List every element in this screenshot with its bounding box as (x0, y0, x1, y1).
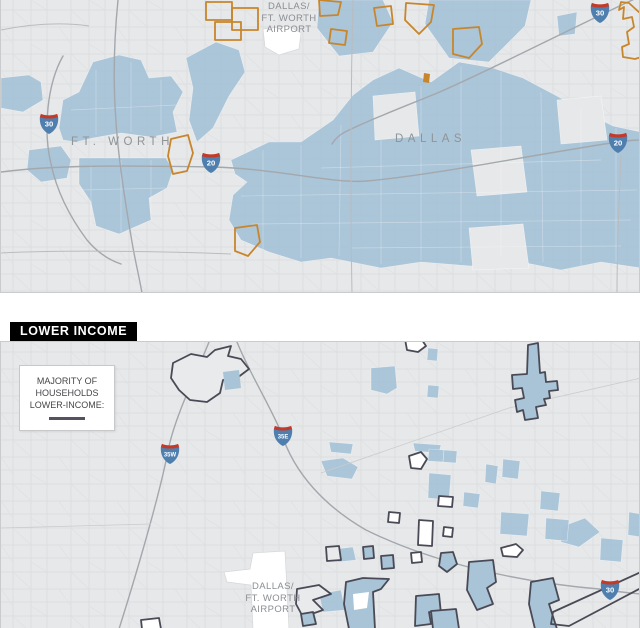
legend: MAJORITY OF HOUSEHOLDS LOWER-INCOME: (19, 365, 115, 431)
lower-income-badge: LOWER INCOME (10, 322, 137, 341)
airport-label-line2: FT. WORTH (231, 593, 315, 605)
city-label-dallas: DALLAS (395, 133, 466, 145)
income-maps-infographic: DALLAS/ FT. WORTH AIRPORT FT. WORTH DALL… (0, 0, 640, 628)
lower-income-map: MAJORITY OF HOUSEHOLDS LOWER-INCOME: DAL… (0, 341, 640, 628)
airport-label-line1: DALLAS/ (231, 581, 315, 593)
city-label-ft-worth: FT. WORTH (71, 136, 174, 148)
interstate-35e-shield-icon: 35E (271, 424, 295, 447)
svg-text:20: 20 (614, 138, 623, 147)
airport-label-line1: DALLAS/ (247, 1, 331, 13)
legend-line3: LOWER-INCOME: (23, 399, 111, 411)
svg-text:20: 20 (207, 158, 216, 167)
interstate-20-shield-icon: 20 (606, 131, 630, 154)
interstate-30-shield-icon: 30 (598, 578, 622, 601)
legend-line2: HOUSEHOLDS (23, 387, 111, 399)
svg-text:35W: 35W (164, 452, 177, 458)
airport-label-line3: AIRPORT (231, 604, 315, 616)
legend-line1: MAJORITY OF (23, 375, 111, 387)
interstate-20-shield-icon: 20 (199, 151, 223, 174)
svg-text:30: 30 (45, 119, 54, 128)
airport-label-line3: AIRPORT (247, 24, 331, 36)
orange-filled-tract (423, 73, 430, 83)
interstate-30-shield-icon: 30 (37, 112, 61, 135)
lower-income-outline-swatch (49, 417, 85, 420)
airport-label-line2: FT. WORTH (247, 13, 331, 25)
airport-label: DALLAS/ FT. WORTH AIRPORT (231, 581, 315, 616)
interstate-30-shield-icon: 30 (588, 1, 612, 24)
interstate-35w-shield-icon: 35W (158, 442, 182, 465)
svg-text:35E: 35E (278, 434, 289, 440)
higher-income-map: DALLAS/ FT. WORTH AIRPORT FT. WORTH DALL… (0, 0, 640, 293)
svg-text:30: 30 (606, 585, 615, 594)
svg-text:30: 30 (596, 8, 605, 17)
airport-label: DALLAS/ FT. WORTH AIRPORT (247, 1, 331, 36)
